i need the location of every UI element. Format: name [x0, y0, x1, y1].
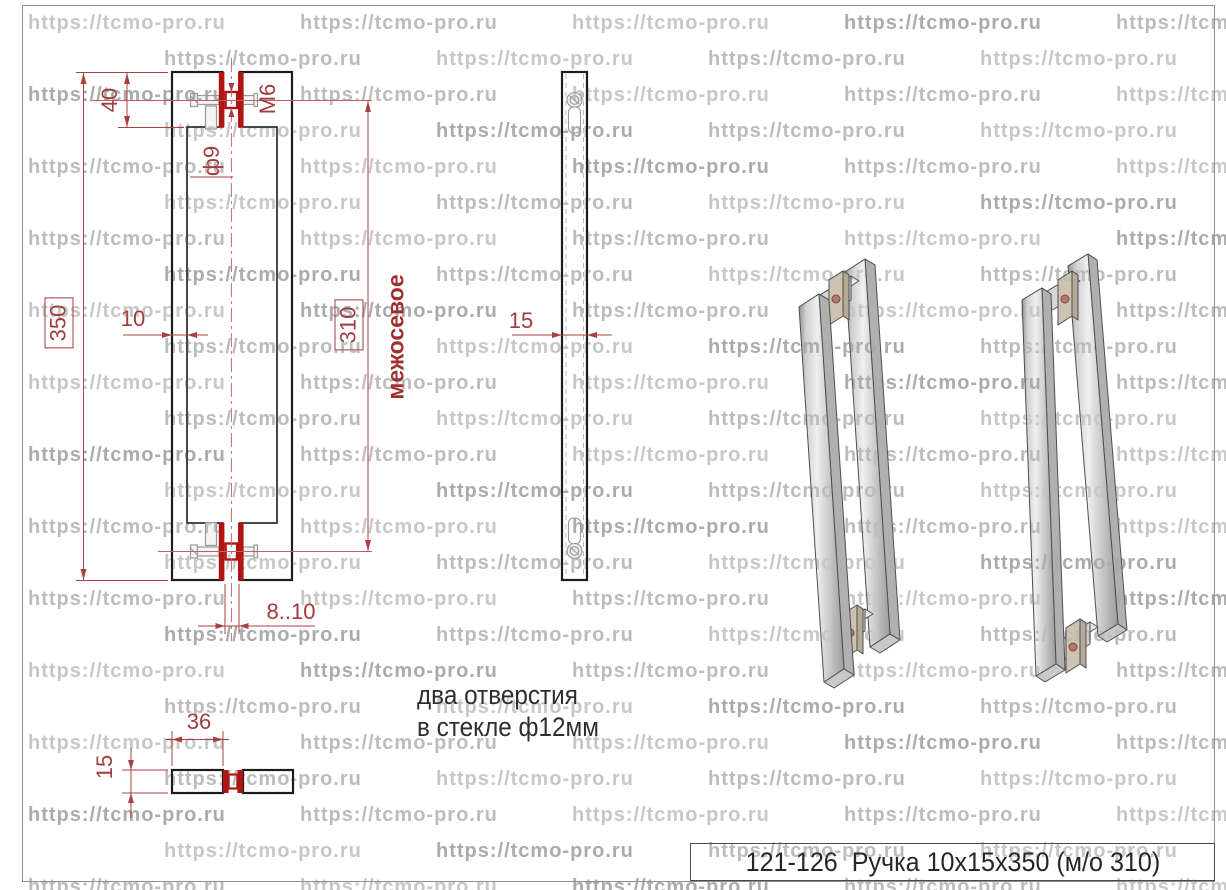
dim-side-depth-label: 15: [509, 310, 533, 332]
axis-distance-label: межосевое: [385, 274, 408, 399]
title-block: 121-126 Ручка 10х15х350 (м/о 310): [690, 843, 1215, 881]
drawing-page: 40 M6 ф9 350 10 310 межосевое 8..10 15 3…: [0, 0, 1226, 890]
note-line-1: два отверстия: [417, 682, 578, 709]
note-line-2: в стекле ф12мм: [417, 714, 599, 741]
dim-post-height-label: 15: [94, 755, 116, 779]
dim-post-length-label: 36: [187, 711, 211, 733]
title-block-text: 121-126 Ручка 10х15х350 (м/о 310): [745, 847, 1160, 878]
dim-thread-label: M6: [257, 84, 279, 115]
dim-glass-thickness-label: 8..10: [267, 601, 316, 623]
dim-overall-length-label: 350: [45, 298, 74, 349]
drawing-frame: [22, 5, 1215, 882]
dim-top-offset-label: 40: [99, 88, 121, 112]
dim-hole-diameter-label: ф9: [201, 146, 223, 176]
dim-hole-spacing-label: 310: [335, 300, 364, 351]
dim-bar-width-label: 10: [121, 308, 145, 330]
